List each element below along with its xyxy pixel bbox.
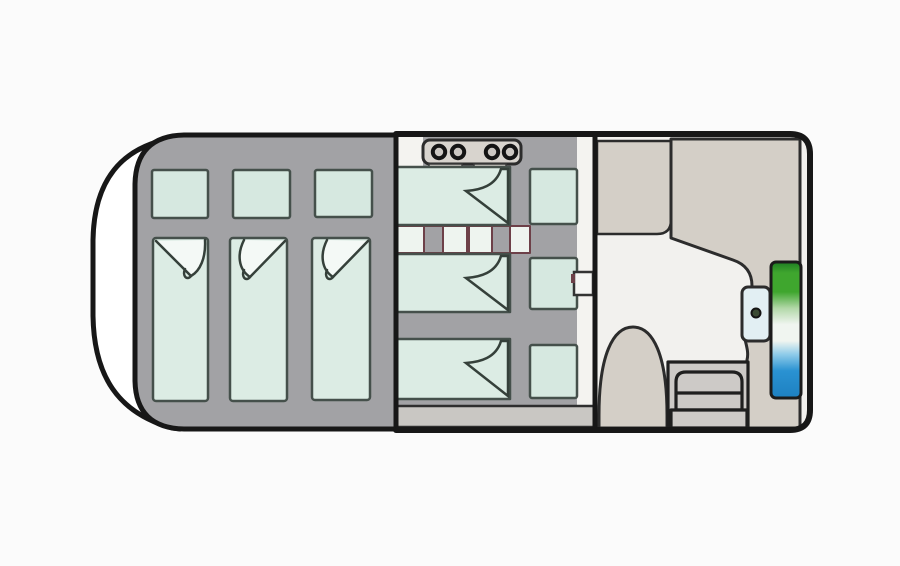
bed-pillow (152, 170, 208, 218)
walkway (397, 406, 594, 427)
floor-patch (397, 137, 423, 167)
floorplan-svg (0, 0, 900, 566)
ladder-divider (466, 226, 470, 253)
left-cabin (152, 170, 372, 401)
bed-pillow (315, 170, 372, 217)
side-step-latch (571, 274, 575, 283)
helm-knob (752, 309, 761, 318)
bed-pillow (530, 169, 577, 224)
ladder-bar (424, 226, 443, 253)
step-tread (671, 410, 747, 428)
bed-mattress (397, 167, 510, 225)
side-step (574, 272, 593, 295)
middle-cabin (397, 137, 594, 427)
ladder-bar (492, 226, 510, 253)
bench-seat (597, 141, 671, 234)
stove-burner-icon (433, 146, 445, 158)
bow-window-view (771, 262, 801, 398)
houseboat-floorplan (0, 0, 900, 566)
bed-mattress (397, 254, 510, 312)
bed-mattress (397, 339, 510, 399)
bed-pillow (233, 170, 290, 218)
stove-burner-icon (504, 146, 516, 158)
bed-pillow (530, 258, 577, 309)
stove-burner-icon (452, 146, 464, 158)
stove-burner-icon (486, 146, 498, 158)
bed-pillow (530, 345, 577, 398)
